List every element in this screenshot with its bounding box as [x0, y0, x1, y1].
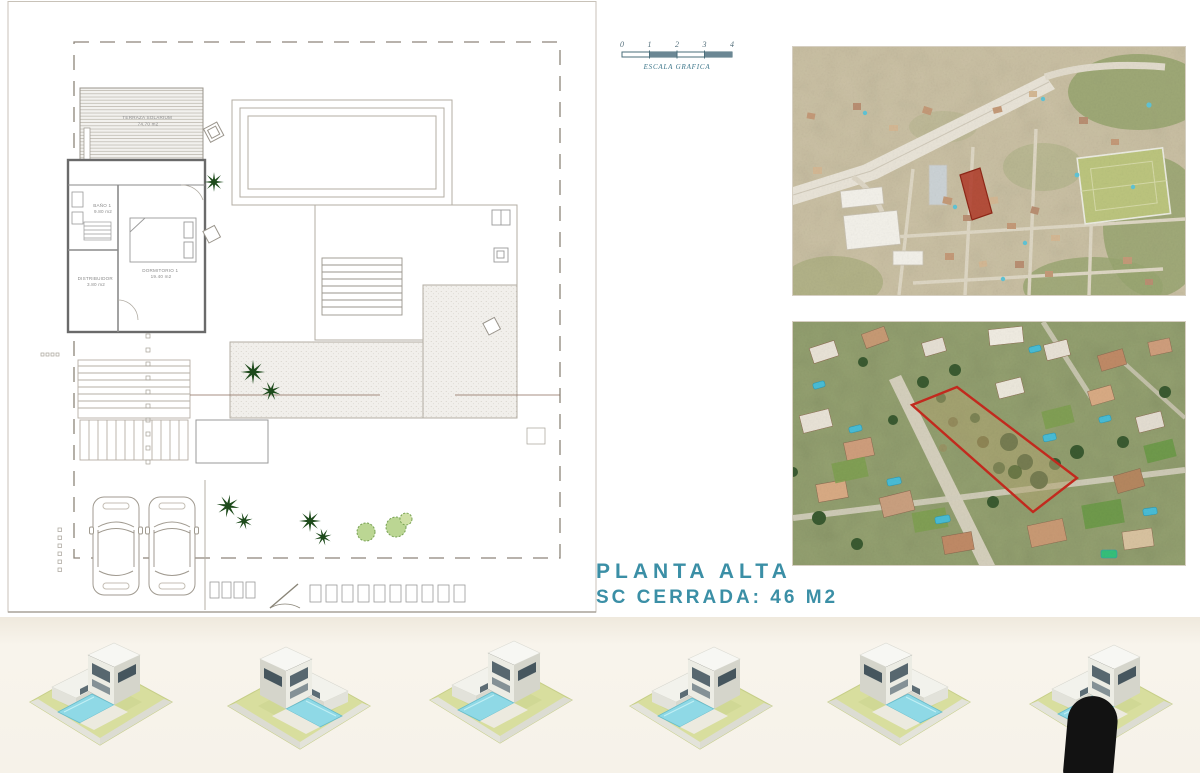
villa-render-3	[430, 641, 572, 743]
villa-render-2	[228, 647, 370, 749]
drawing-title: PLANTA ALTA SC CERRADA: 46 M2	[596, 560, 926, 609]
scale-tick-1: 1	[648, 40, 652, 49]
floor-plan-drawing: TERRAZA SOLARIUM 74.70 m2	[0, 0, 600, 617]
roof-void-outline	[232, 100, 452, 205]
villa-render-4	[630, 647, 772, 749]
entrance-gate	[210, 582, 465, 608]
aerial-plot-photo	[792, 321, 1186, 566]
jacuzzi-deck	[196, 420, 268, 463]
scale-tick-3: 3	[702, 40, 707, 49]
satellite-overview-photo	[792, 46, 1186, 296]
garden-steps	[78, 360, 190, 460]
car-top-view	[90, 497, 143, 595]
presentation-page: TERRAZA SOLARIUM 74.70 m2	[0, 0, 1200, 773]
scale-tick-2: 2	[675, 40, 679, 49]
title-line-1: PLANTA ALTA	[596, 560, 926, 584]
villa-render-1	[30, 643, 172, 745]
render-thumbnail-strip	[0, 617, 1200, 773]
scale-tick-4: 4	[730, 40, 734, 49]
driveway	[90, 395, 561, 610]
scale-bar-label: ESCALA GRAFICA	[643, 63, 711, 71]
car-top-view	[146, 497, 199, 595]
scale-bar-ruler	[622, 51, 732, 59]
graphic-scale-bar: 0 1 2 3 4 ESCALA GRAFICA	[618, 38, 742, 80]
title-line-2: SC CERRADA: 46 M2	[596, 587, 926, 609]
terraza-solarium: TERRAZA SOLARIUM 74.70 m2	[80, 88, 203, 165]
house-block: BAÑO 1 9.80 m2 DORMITORIO 1 19.40 m2 DIS…	[68, 160, 205, 332]
villa-render-5	[828, 643, 970, 745]
scale-tick-0: 0	[620, 40, 624, 49]
